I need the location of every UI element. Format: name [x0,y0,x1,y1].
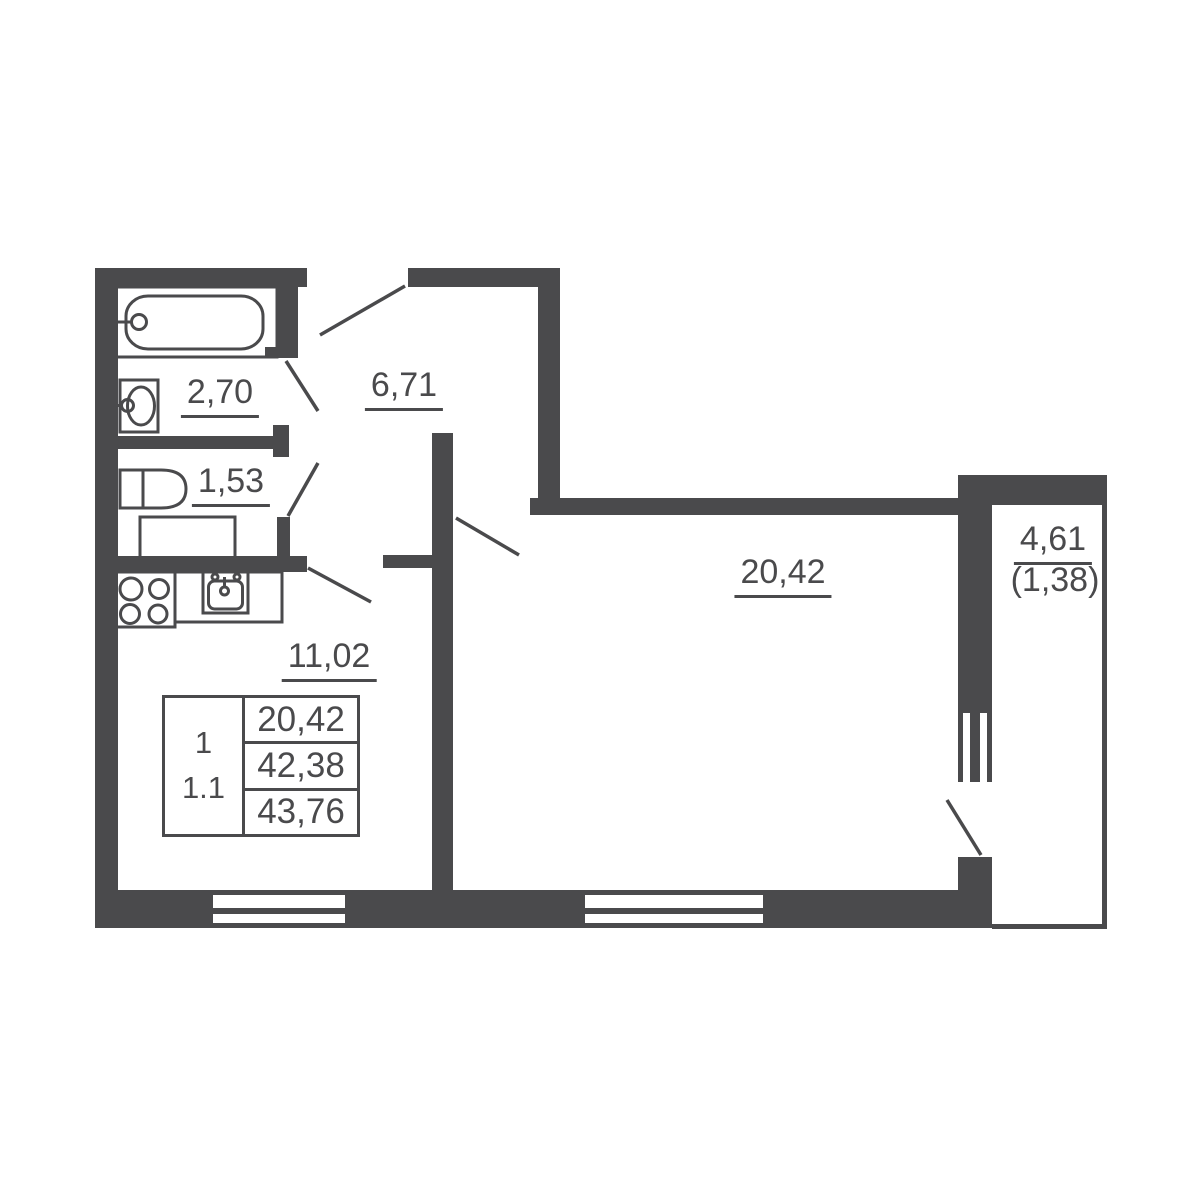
apartment-info-table: 1 1.1 20,42 42,38 43,76 [162,695,360,837]
balcony-area-label: 4,61 [1014,522,1092,565]
stove-icon [115,572,175,627]
toilet-icon [120,470,186,508]
kitchen-door-swing [308,568,371,602]
hallway-area-label: 6,71 [365,368,443,411]
balcony-area-secondary-label: (1,38) [1011,563,1100,599]
bathroom-door-swing [286,361,318,411]
areas-column: 20,42 42,38 43,76 [245,698,357,834]
living-room-area-label: 20,42 [734,555,831,598]
toilet-door-swing [288,463,318,516]
bathtub-icon [115,287,277,357]
living-area-value: 20,42 [245,698,357,744]
entrance-door-swing [320,286,405,335]
rooms-count: 1 [195,721,212,766]
washing-machine-icon [140,517,235,560]
apartment-area-value: 42,38 [245,744,357,790]
fixtures-layer [0,0,1200,1200]
balcony-door-swing [947,800,981,855]
unit-type: 1.1 [182,766,225,811]
living-room-door-swing [456,518,519,555]
total-area-value: 43,76 [245,791,357,834]
apartment-type-cell: 1 1.1 [165,698,245,834]
floor-plan: 2,70 1,53 6,71 11,02 20,42 4,61 (1,38) 1… [0,0,1200,1200]
kitchen-sink-icon [203,572,248,613]
bathroom-area-label: 2,70 [181,375,259,418]
toilet-area-label: 1,53 [192,464,270,507]
kitchen-area-label: 11,02 [282,639,377,682]
bathroom-sink-icon [112,380,158,432]
